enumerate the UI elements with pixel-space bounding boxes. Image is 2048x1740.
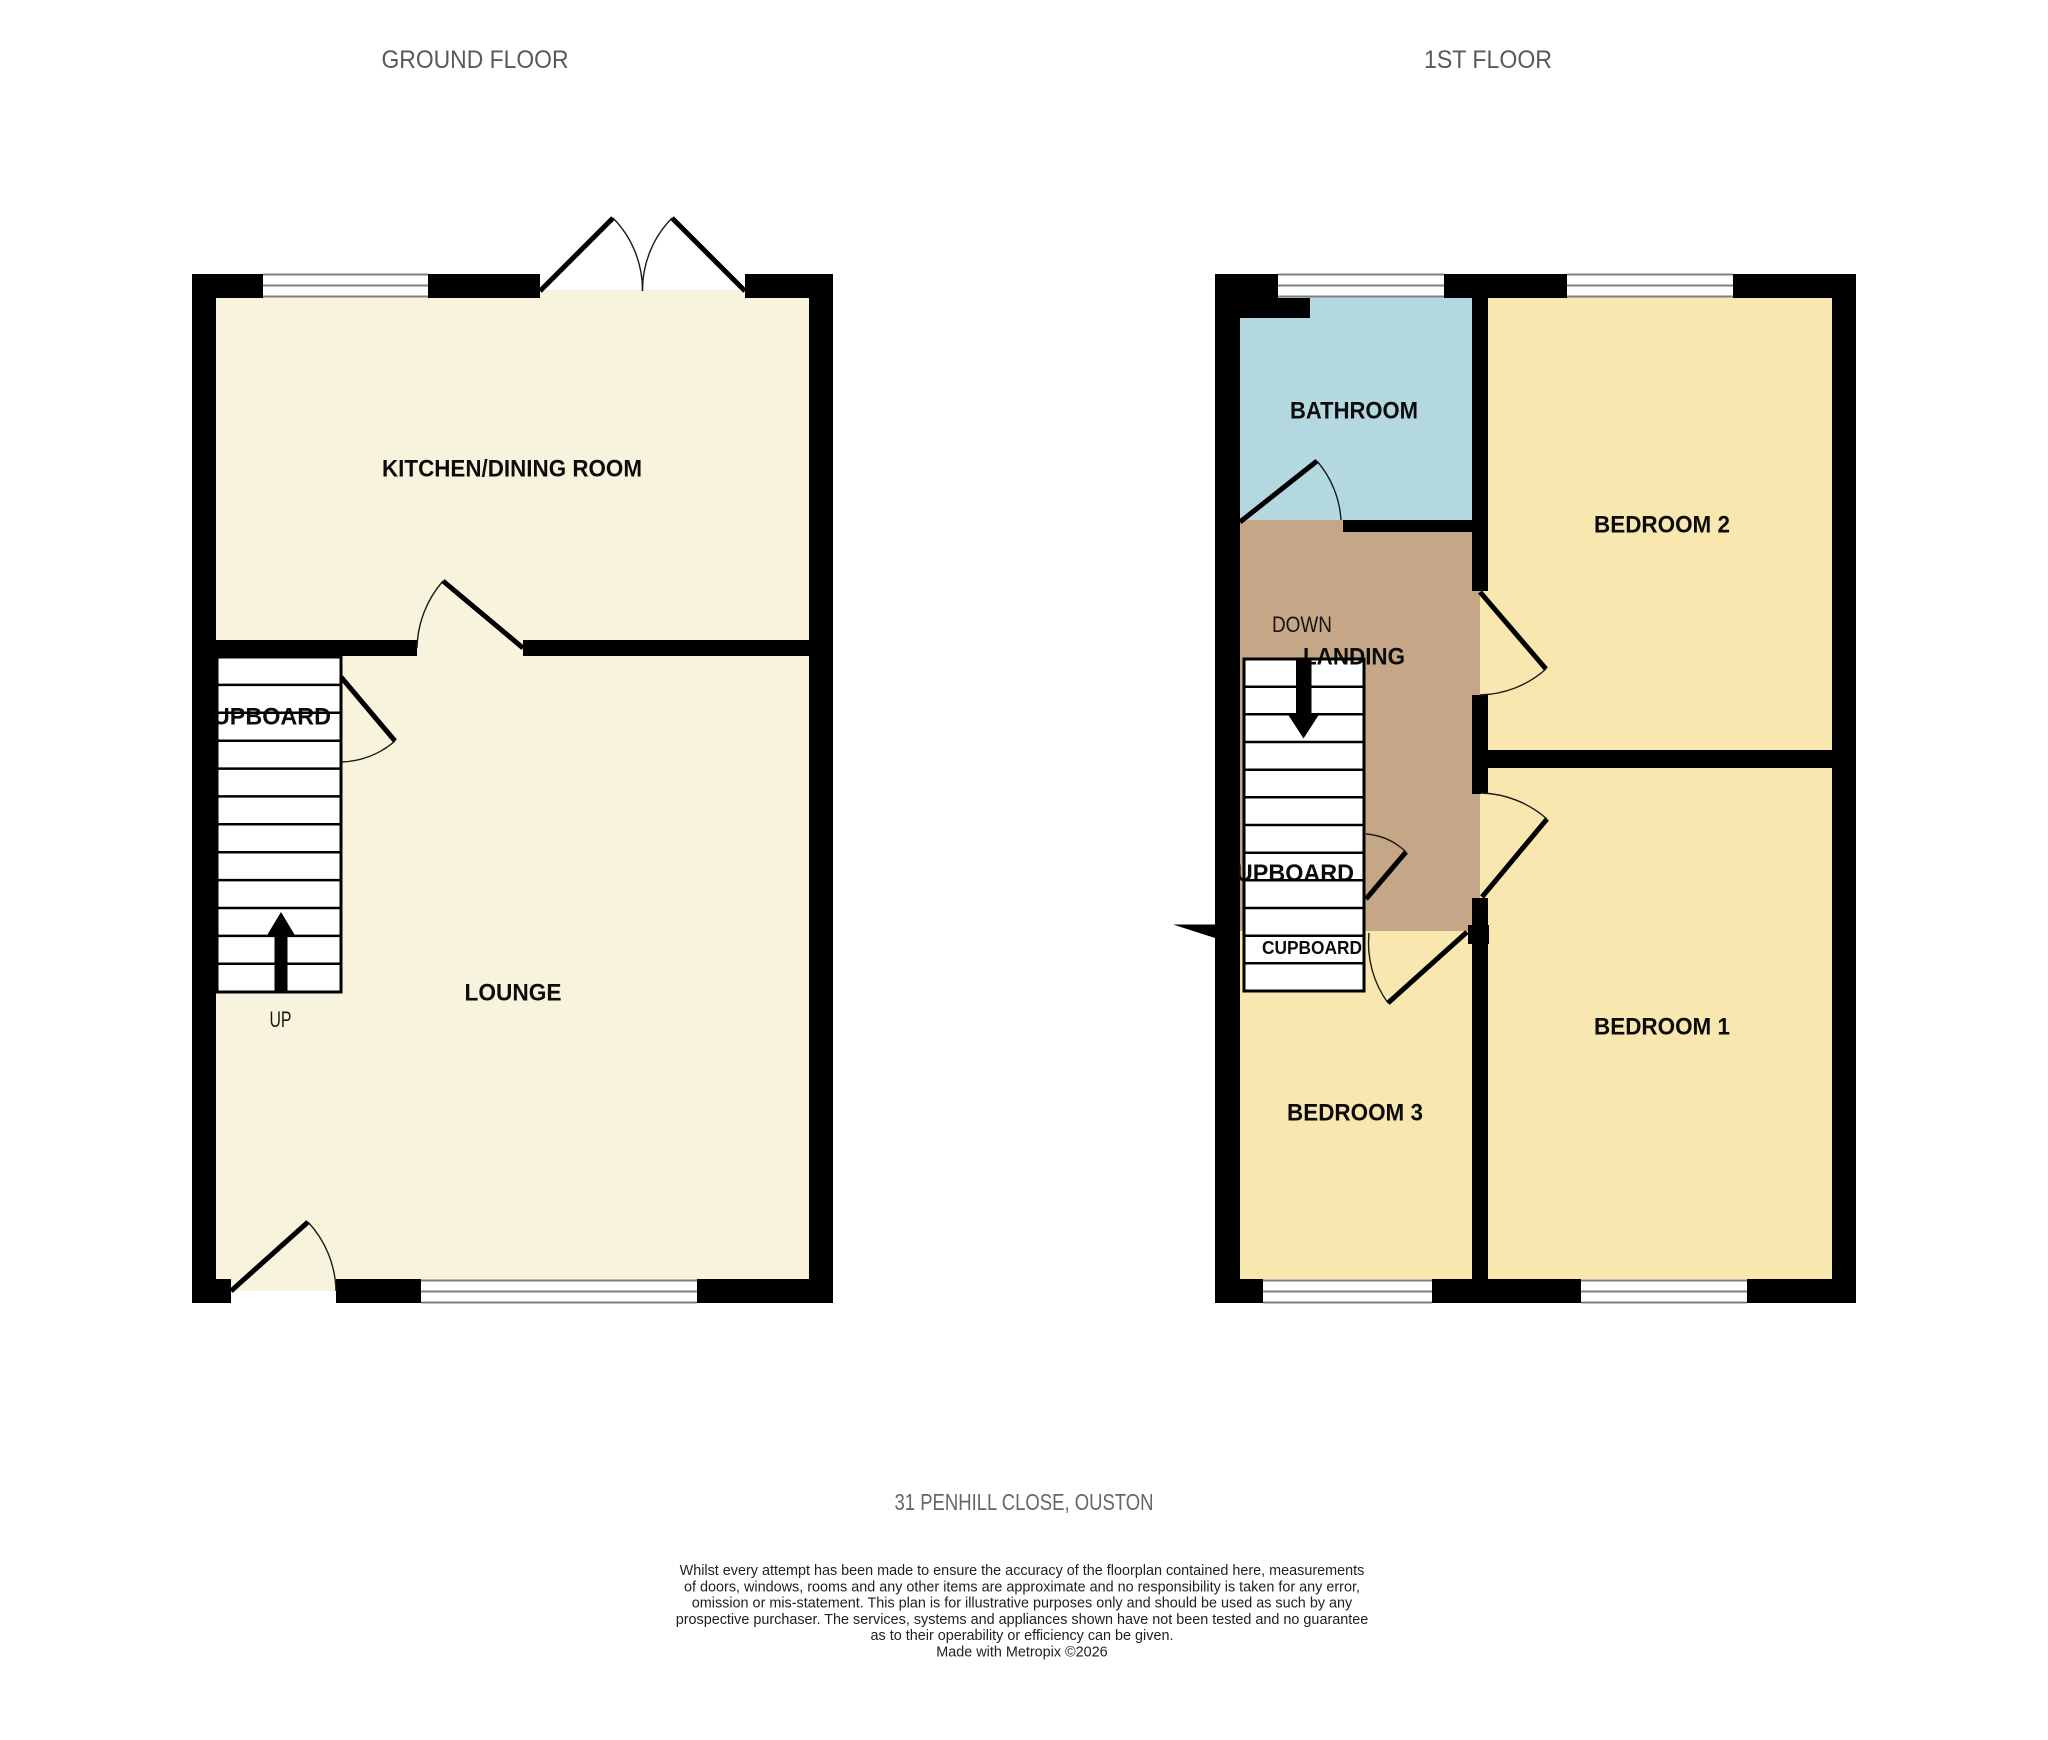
svg-text:Made with Metropix ©2026: Made with Metropix ©2026 (936, 1645, 1107, 1661)
svg-text:1ST FLOOR: 1ST FLOOR (1424, 46, 1552, 74)
svg-text:KITCHEN/DINING ROOM: KITCHEN/DINING ROOM (382, 456, 642, 483)
svg-text:BEDROOM 1: BEDROOM 1 (1594, 1014, 1730, 1041)
svg-text:as to their operability or eff: as to their operability or efficiency ca… (871, 1628, 1174, 1644)
svg-text:BEDROOM 2: BEDROOM 2 (1594, 512, 1730, 539)
svg-text:of doors, windows, rooms and a: of doors, windows, rooms and any other i… (684, 1579, 1360, 1595)
svg-text:UP: UP (270, 1007, 292, 1032)
svg-text:GROUND FLOOR: GROUND FLOOR (382, 46, 569, 74)
svg-text:prospective purchaser. The ser: prospective purchaser. The services, sys… (676, 1612, 1369, 1628)
svg-text:BEDROOM 3: BEDROOM 3 (1287, 1100, 1423, 1127)
svg-text:CUPBOARD: CUPBOARD (1262, 938, 1362, 958)
svg-text:BATHROOM: BATHROOM (1290, 398, 1418, 425)
svg-text:DOWN: DOWN (1272, 612, 1332, 637)
svg-text:Whilst every attempt has been: Whilst every attempt has been made to en… (680, 1563, 1365, 1579)
svg-text:LANDING: LANDING (1303, 644, 1405, 671)
svg-text:CUPBOARD: CUPBOARD (1219, 860, 1354, 887)
svg-text:LOUNGE: LOUNGE (465, 980, 562, 1007)
svg-text:31 PENHILL CLOSE, OUSTON: 31 PENHILL CLOSE, OUSTON (895, 1489, 1154, 1515)
svg-text:omission or mis-statement. Thi: omission or mis-statement. This plan is … (692, 1596, 1353, 1612)
